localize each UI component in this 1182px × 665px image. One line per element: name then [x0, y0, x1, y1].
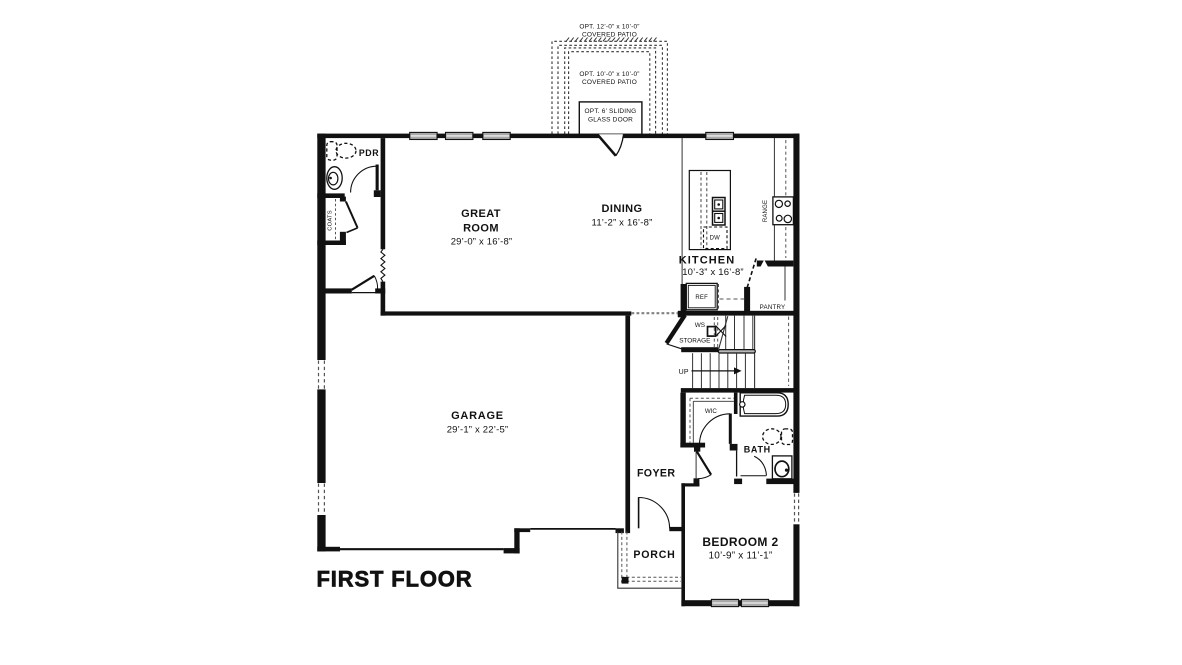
svg-text:OPT. 10’-0” x 10’-0”: OPT. 10’-0” x 10’-0” [579, 71, 639, 78]
svg-text:OPT. 12’-0” x 10’-0”: OPT. 12’-0” x 10’-0” [579, 24, 639, 31]
svg-text:GARAGE: GARAGE [451, 410, 504, 422]
svg-text:REF: REF [695, 295, 708, 301]
svg-text:GLASS DOOR: GLASS DOOR [588, 116, 633, 123]
svg-text:GREAT: GREAT [461, 208, 501, 220]
svg-text:PDR: PDR [359, 148, 379, 158]
svg-text:COVERED PATIO: COVERED PATIO [582, 79, 637, 86]
svg-text:WIC: WIC [705, 408, 718, 415]
svg-text:FIRST FLOOR: FIRST FLOOR [317, 567, 473, 592]
svg-text:11’-2” x 16’-8”: 11’-2” x 16’-8” [592, 218, 653, 229]
svg-text:RANGE: RANGE [763, 200, 769, 222]
svg-text:29’-1” x 22’-5”: 29’-1” x 22’-5” [447, 425, 509, 436]
svg-text:DW: DW [710, 236, 721, 242]
svg-text:OPT. 6’ SLIDING: OPT. 6’ SLIDING [585, 108, 637, 115]
svg-text:WS: WS [695, 322, 705, 329]
svg-text:STORAGE: STORAGE [679, 338, 710, 345]
svg-text:10’-9” x 11’-1”: 10’-9” x 11’-1” [709, 551, 773, 562]
svg-text:UP: UP [679, 369, 689, 376]
svg-text:10’-3” x 16’-8”: 10’-3” x 16’-8” [682, 267, 744, 278]
svg-text:KITCHEN: KITCHEN [679, 255, 736, 267]
svg-text:29’-0” x 16’-8”: 29’-0” x 16’-8” [451, 236, 513, 247]
svg-text:COVERED PATIO: COVERED PATIO [582, 32, 637, 39]
svg-text:COATS: COATS [328, 210, 334, 231]
svg-text:BATH: BATH [744, 445, 771, 455]
svg-text:BEDROOM 2: BEDROOM 2 [702, 535, 778, 549]
svg-text:DINING: DINING [602, 203, 643, 215]
svg-text:PORCH: PORCH [633, 549, 675, 561]
svg-text:PANTRY: PANTRY [760, 304, 786, 311]
svg-text:FOYER: FOYER [637, 467, 676, 479]
svg-text:ROOM: ROOM [463, 223, 499, 235]
